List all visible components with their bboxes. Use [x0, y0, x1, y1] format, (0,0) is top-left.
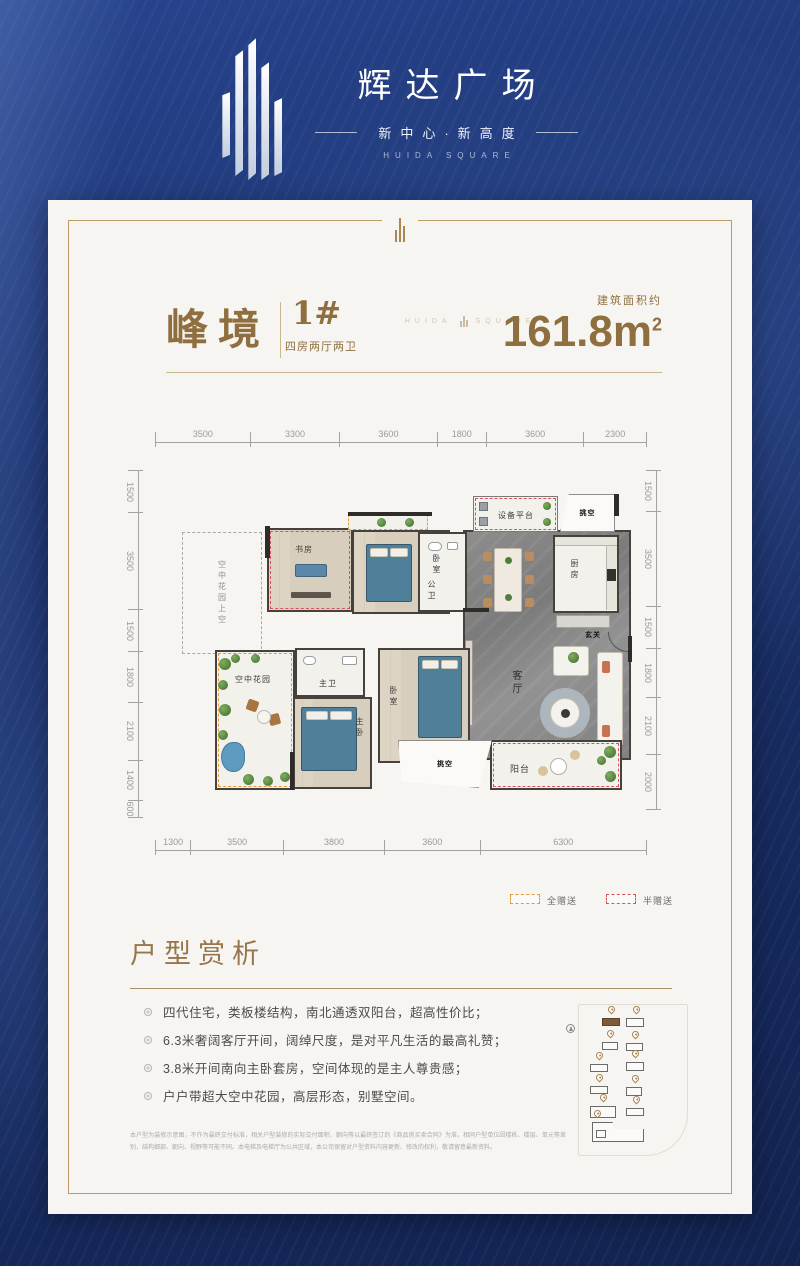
- dim-row-top: 3500 3300 3600 1800 3600 2300: [155, 432, 647, 447]
- dim-row-bottom: 1300 3500 3800 3600 6300: [155, 840, 647, 855]
- dim-segment: 2300: [583, 432, 647, 447]
- dim-segment: 1800: [646, 648, 661, 697]
- brand-text-block: 辉达广场 新中心·新高度 HUIDA SQUARE: [315, 58, 577, 160]
- plant: [218, 730, 228, 740]
- room-balcony: 阳台: [490, 740, 622, 790]
- site-building: [596, 1130, 606, 1138]
- room-label: 卧室: [431, 554, 442, 576]
- tagline-rule-left: [315, 132, 357, 133]
- sink-fixture: [342, 656, 357, 665]
- brand-tagline-row: 新中心·新高度: [315, 123, 577, 142]
- legend-label-full-gift: 全赠送: [547, 894, 577, 907]
- dim-segment: 3500: [128, 512, 143, 609]
- garden-table: [257, 710, 271, 724]
- cushion: [602, 725, 610, 737]
- plant: [280, 772, 290, 782]
- plant: [405, 518, 414, 527]
- wall-segment: [290, 752, 294, 790]
- legend-swatch-half-gift: [606, 894, 636, 904]
- dining-chair: [525, 598, 534, 607]
- dim-segment: 1500: [128, 470, 143, 512]
- site-map: [560, 998, 700, 1168]
- layout-type: 四房两厅两卫: [285, 338, 357, 354]
- plant: [568, 652, 579, 663]
- title-rule: [166, 372, 662, 373]
- plan-name: 峰境: [166, 296, 270, 357]
- analysis-bullet: 户户带超大空中花园，高层形态，别墅空间。: [144, 1086, 423, 1105]
- area-superscript: 2: [652, 314, 662, 334]
- room-label: 空中花园: [235, 674, 271, 685]
- dim-segment: 3600: [339, 432, 436, 447]
- analysis-bullet: 四代住宅，类板楼结构，南北通透双阳台，超高性价比；: [144, 1002, 488, 1021]
- bullet-text: 户户带超大空中花园，高层形态，别墅空间。: [163, 1086, 423, 1105]
- room-label: 书房: [295, 544, 313, 555]
- foyer-cabinet: [556, 615, 610, 628]
- dim-segment: 3600: [486, 432, 583, 447]
- dim-segment: 2000: [646, 754, 661, 810]
- table-plant: [505, 557, 512, 564]
- dining-chair: [525, 575, 534, 584]
- sofa-furniture: [295, 564, 327, 577]
- room-master-bedroom: 主卧: [290, 697, 372, 789]
- bullet-text: 3.8米开间南向主卧套房，空间体现的是主人尊贵感；: [163, 1058, 468, 1077]
- sofa: [597, 652, 623, 746]
- compass-icon: [566, 1024, 575, 1033]
- ac-unit: [479, 517, 488, 526]
- room-master-bath: 主卫: [295, 648, 365, 697]
- plant: [263, 776, 273, 786]
- plant: [219, 658, 231, 670]
- kitchen-counter: [555, 537, 617, 546]
- room-label-living: 客厅: [508, 670, 523, 696]
- bed-furniture: [301, 707, 357, 771]
- garden-chair: [245, 698, 259, 712]
- wall-segment: [614, 494, 619, 516]
- dim-segment: 3800: [283, 840, 384, 855]
- brand-logo-icon: [222, 36, 287, 182]
- title-divider: [280, 302, 281, 358]
- dim-segment: 1800: [128, 651, 143, 701]
- plant: [377, 518, 386, 527]
- analysis-bullet: 3.8米开间南向主卧套房，空间体现的是主人尊贵感；: [144, 1058, 468, 1077]
- room-label: 挑空: [580, 508, 596, 518]
- site-building: [626, 1108, 644, 1116]
- site-building: [626, 1018, 644, 1027]
- dim-segment: 2100: [128, 702, 143, 761]
- plant: [605, 771, 616, 782]
- bullet-marker-icon: [144, 1008, 152, 1016]
- plant: [231, 654, 240, 663]
- room-label: 卧室: [388, 686, 399, 708]
- wall-segment: [265, 526, 270, 558]
- room-void-top: 挑空: [560, 494, 615, 532]
- bed-furniture: [418, 656, 462, 738]
- room-label-foyer: 玄关: [585, 630, 601, 640]
- room-label: 阳台: [510, 762, 530, 775]
- tagline-rule-right: [536, 132, 578, 133]
- legend-swatch-full-gift: [510, 894, 540, 904]
- wall-segment: [628, 636, 632, 662]
- balcony-stool: [570, 750, 580, 760]
- bullet-text: 四代住宅，类板楼结构，南北通透双阳台，超高性价比；: [163, 1002, 488, 1021]
- brand-tagline-en: HUIDA SQUARE: [377, 151, 515, 160]
- floorplan-card: 峰境 1# 四房两厅两卫 HUIDA SQUARE 建筑面积约 161.8m2 …: [48, 200, 752, 1214]
- dining-chair: [483, 552, 492, 561]
- ac-unit: [479, 502, 488, 511]
- plant: [604, 746, 616, 758]
- room-public-bath: 公卫: [418, 532, 467, 612]
- dim-segment: 6300: [480, 840, 648, 855]
- site-building: [626, 1087, 642, 1096]
- plant: [597, 756, 606, 765]
- room-label: 挑空: [437, 759, 453, 769]
- room-label: 厨房: [569, 559, 580, 581]
- area-value: 161.8m2: [503, 308, 662, 356]
- dim-segment: 1500: [128, 609, 143, 651]
- analysis-rule: [130, 988, 672, 989]
- dining-chair: [483, 575, 492, 584]
- plant: [251, 654, 260, 663]
- toilet-fixture: [303, 656, 316, 665]
- room-label: 设备平台: [498, 510, 534, 521]
- living-rug: [540, 688, 590, 738]
- analysis-title: 户型赏析: [130, 932, 266, 971]
- bullet-marker-icon: [144, 1036, 152, 1044]
- bullet-text: 6.3米奢阔客厅开间，阔绰尺度，是对平凡生活的最高礼赞；: [163, 1030, 507, 1049]
- plant: [543, 518, 551, 526]
- room-kitchen: 厨房: [553, 535, 619, 613]
- area-label: 建筑面积约: [503, 292, 662, 308]
- plant: [243, 774, 254, 785]
- dim-segment: 2100: [646, 697, 661, 754]
- toilet-fixture: [428, 542, 442, 551]
- room-sky-garden: 空中花园: [215, 650, 295, 790]
- room-label: 公卫: [426, 580, 437, 602]
- stove: [607, 569, 616, 581]
- plant: [218, 680, 228, 690]
- site-building-current: [602, 1018, 620, 1026]
- dining-chair: [525, 552, 534, 561]
- dining-table: [494, 548, 522, 612]
- disclaimer-text: 本户型为装修示意图，不作为最终交付标准，相关户型装修的实际交付面积、朝向等以最终…: [130, 1130, 566, 1154]
- dim-segment: 1300: [155, 840, 190, 855]
- dim-segment: 1800: [437, 432, 486, 447]
- frame-building-icon: [382, 210, 418, 242]
- site-building: [590, 1064, 608, 1072]
- site-building: [590, 1086, 608, 1094]
- sink-fixture: [447, 542, 458, 550]
- garden-pond: [221, 742, 245, 772]
- dim-segment: 3300: [250, 432, 339, 447]
- brand-name: 辉达广场: [344, 58, 550, 107]
- bullet-marker-icon: [144, 1064, 152, 1072]
- room-void-bottom: 挑空: [398, 740, 492, 788]
- wall-segment: [463, 608, 489, 612]
- room-sky-garden-void: 空中花园上空: [182, 532, 262, 654]
- room-label: 主卫: [319, 678, 337, 689]
- dining-chair: [483, 598, 492, 607]
- dim-segment: 3500: [155, 432, 250, 447]
- bed-furniture: [366, 544, 412, 602]
- dim-segment: 1400: [128, 760, 143, 799]
- dim-segment: 3500: [646, 511, 661, 606]
- wall-segment: [348, 512, 432, 516]
- dim-segment: 1500: [646, 606, 661, 647]
- analysis-bullet: 6.3米奢阔客厅开间，阔绰尺度，是对平凡生活的最高礼赞；: [144, 1030, 507, 1049]
- dim-segment: 600: [128, 800, 143, 818]
- room-equipment-platform: 设备平台: [473, 496, 558, 532]
- room-label: 主卧: [354, 717, 365, 739]
- dim-segment: 3500: [190, 840, 283, 855]
- table-plant: [505, 594, 512, 601]
- legend-label-half-gift: 半赠送: [643, 894, 673, 907]
- balcony-table: [550, 758, 567, 775]
- dim-col-left: 1500 3500 1500 1800 2100 1400 600: [128, 470, 143, 818]
- bay-planter-strip: [348, 514, 428, 530]
- kettle: [561, 709, 570, 718]
- dim-segment: 1500: [646, 470, 661, 511]
- brand-header: 辉达广场 新中心·新高度 HUIDA SQUARE: [0, 36, 800, 182]
- room-label: 空中花园上空: [217, 560, 228, 626]
- watermark-building-icon: [460, 316, 468, 327]
- site-building: [626, 1062, 644, 1071]
- dim-segment: 3600: [384, 840, 480, 855]
- site-building: [602, 1042, 618, 1050]
- brand-tagline: 新中心·新高度: [369, 123, 523, 142]
- desk-furniture: [291, 592, 331, 598]
- dim-col-right: 1500 3500 1500 1800 2100 2000: [646, 470, 661, 810]
- bullet-marker-icon: [144, 1092, 152, 1100]
- plant: [543, 502, 551, 510]
- balcony-stool: [538, 766, 548, 776]
- plant: [219, 704, 231, 716]
- watermark-left: HUIDA: [405, 318, 452, 325]
- unit-number: 1#: [292, 294, 341, 332]
- cushion: [602, 661, 610, 673]
- room-study: 书房: [267, 528, 353, 612]
- area-block: 建筑面积约 161.8m2: [503, 292, 662, 356]
